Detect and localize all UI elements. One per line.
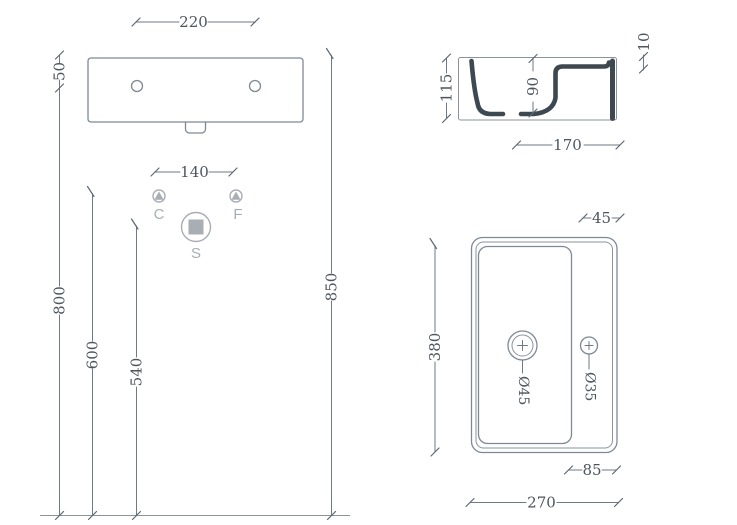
- supply-symbol-c: C: [153, 190, 165, 223]
- dim-width-label: 270: [527, 494, 556, 512]
- floor-line: [40, 512, 350, 520]
- dim-height: 115: [438, 54, 456, 123]
- basin-front-outline: [88, 58, 303, 122]
- dim-drain-height: 540: [128, 219, 146, 516]
- dim-rim-to-holes-and-holes-height: 50 800: [51, 51, 69, 516]
- dim-hole-spacing: 140: [151, 163, 237, 181]
- dim-hole-diameter-label: Ø35: [582, 372, 598, 401]
- dim-supply-height: 600: [84, 187, 102, 516]
- plan-outer-rim: [472, 238, 618, 453]
- drain-symbol-s: S: [182, 213, 211, 263]
- supply-f-label: F: [233, 206, 242, 223]
- side-section-view: 115 90 10 170: [438, 32, 654, 154]
- dim-top-width: 220: [132, 13, 259, 31]
- dim-depth-label: 170: [553, 136, 582, 154]
- dim-rim-thickness: 10: [635, 32, 653, 73]
- supply-symbol-f: F: [230, 190, 243, 223]
- dim-hole-offset-label: 85: [582, 461, 601, 479]
- plan-view: 45 Ø45 Ø35 380: [426, 209, 624, 512]
- dim-drain-diameter-label: Ø45: [515, 376, 531, 405]
- center-cross-icon: [518, 341, 528, 351]
- basin-technical-drawing: 220 140 C F S: [0, 0, 737, 525]
- dim-overall-height: 850: [323, 49, 341, 516]
- drain-s-label: S: [191, 245, 201, 262]
- dim-rim-thickness-label: 10: [635, 32, 653, 51]
- dim-top-width-label: 220: [179, 13, 208, 31]
- dim-overall-height-label: 850: [323, 273, 341, 302]
- tap-hole-left: [132, 81, 143, 92]
- front-view: 220 140 C F S: [40, 13, 350, 520]
- tap-hole: Ø35: [581, 337, 598, 401]
- dim-hole-spacing-label: 140: [180, 163, 209, 181]
- supply-c-label: C: [154, 206, 165, 223]
- dim-hole-offset: 85: [565, 461, 621, 479]
- dim-deck-width: 45: [579, 209, 624, 227]
- dim-supply-height-label: 600: [84, 341, 102, 370]
- drain-hole: Ø45: [508, 331, 537, 405]
- dim-length-label: 380: [426, 333, 444, 362]
- center-cross-icon: [585, 342, 593, 350]
- section-left-wall: [472, 61, 504, 114]
- drain-stub: [186, 122, 206, 133]
- dim-rim-to-holes-label: 50: [51, 62, 69, 81]
- dim-length: 380: [426, 239, 444, 457]
- tap-hole-right: [250, 81, 261, 92]
- dim-deck-width-label: 45: [592, 209, 611, 227]
- dim-inner-depth-label: 90: [524, 77, 542, 96]
- triangle-icon: [231, 192, 240, 200]
- dim-width: 270: [466, 494, 623, 512]
- dim-drain-height-label: 540: [128, 358, 146, 387]
- technical-drawing-sheet: 220 140 C F S: [0, 0, 737, 525]
- dim-inner-depth: 90: [524, 55, 542, 118]
- dim-holes-height-label: 800: [51, 286, 69, 315]
- dim-depth: 170: [513, 136, 625, 154]
- dim-height-label: 115: [438, 74, 456, 103]
- triangle-icon: [154, 192, 163, 200]
- square-icon: [189, 220, 204, 235]
